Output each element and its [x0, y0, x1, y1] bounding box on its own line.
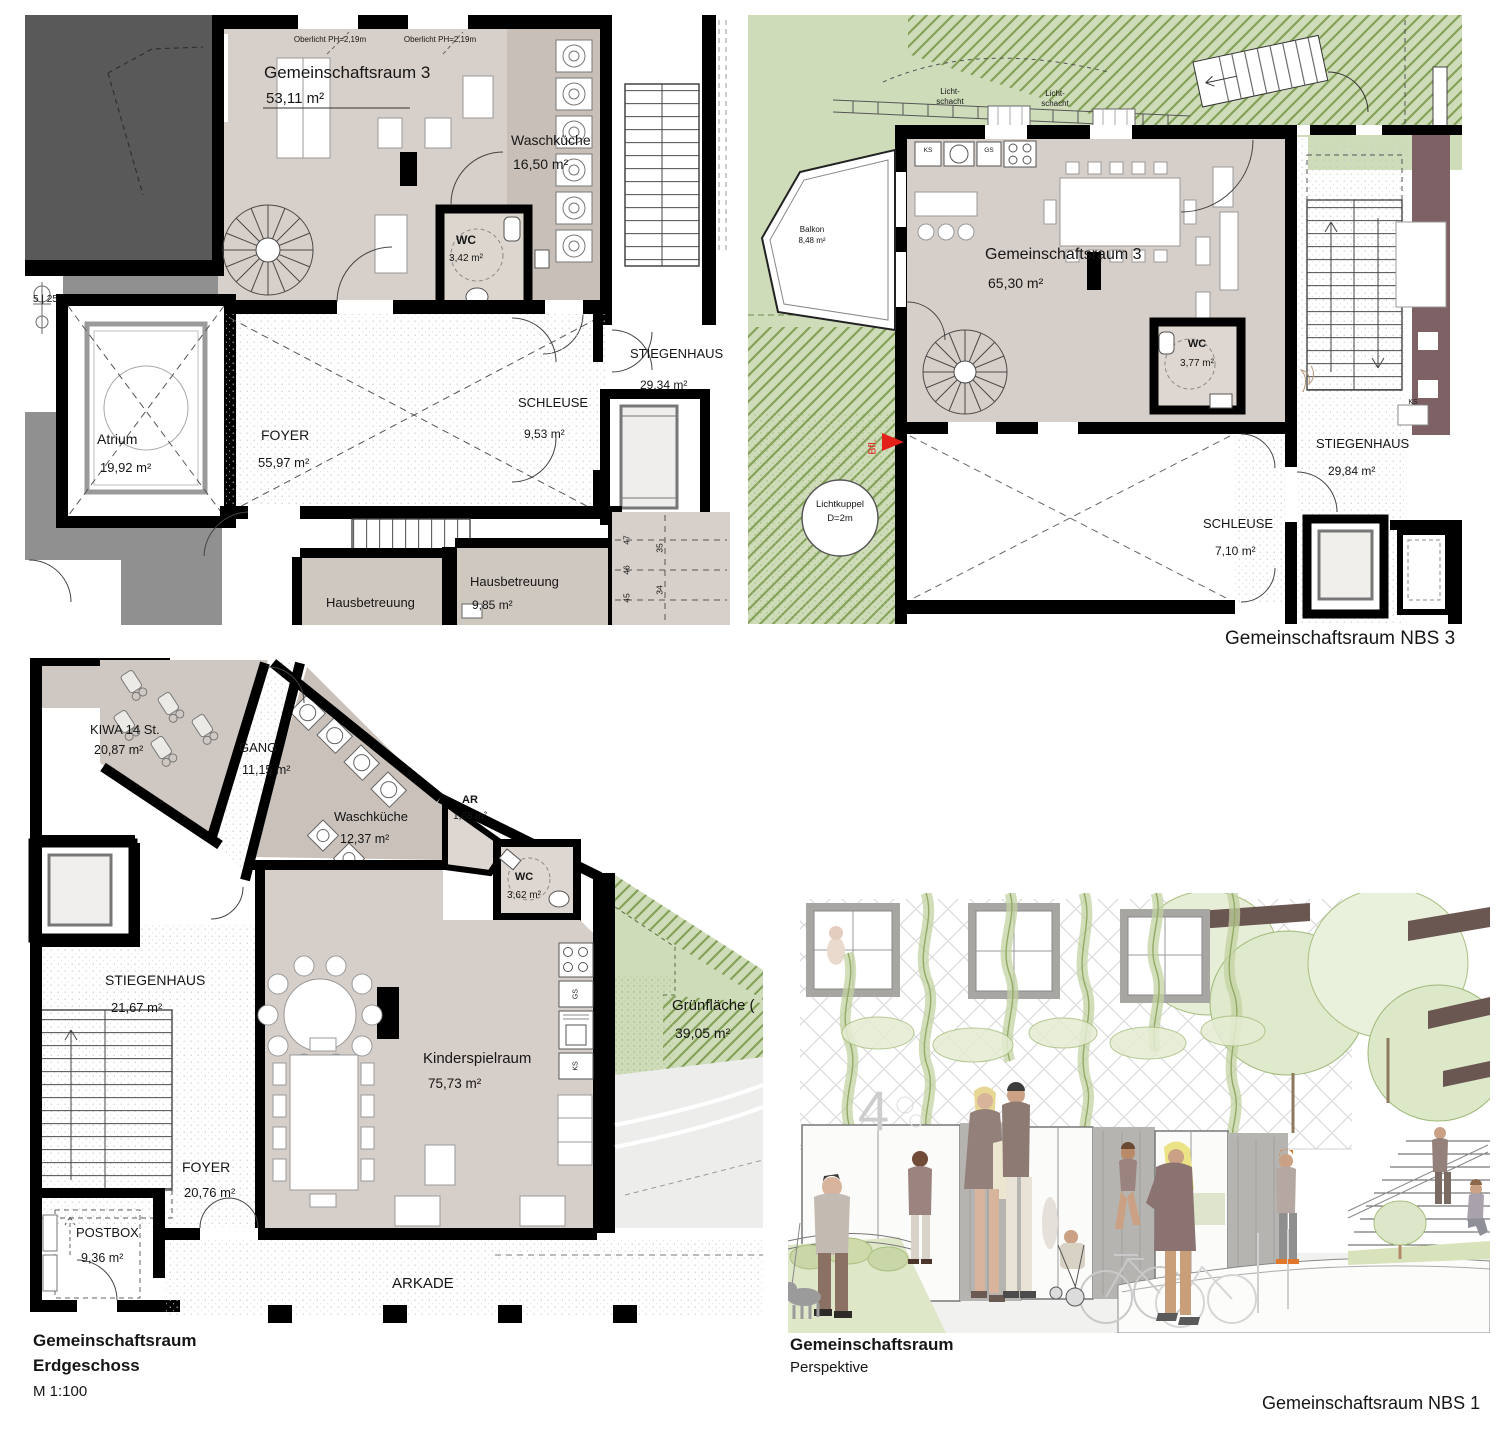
room-area-kinderspielraum: 75,73 m² [428, 1077, 481, 1091]
room-area-waschkueche3: 12,37 m² [340, 833, 389, 846]
room-area-ar: 1,68 m² [453, 812, 487, 823]
wall [245, 860, 460, 870]
caption-plan3-line1: Gemeinschaftsraum [33, 1332, 196, 1350]
room-area-postbox: 9,36 m² [81, 1252, 123, 1265]
room-area-foyer3: 20,76 m² [184, 1186, 235, 1200]
lichtkuppel-label-1: Lichtkuppel [816, 500, 864, 510]
room-area-gruenflaeche: 39,05 m² [675, 1026, 730, 1041]
room-label-schleuse1: SCHLEUSE [518, 396, 588, 410]
room-label-wc3: WC [515, 872, 533, 884]
room-label-ar: AR [462, 795, 478, 807]
room-label-gang: GANG [239, 741, 277, 755]
room-label-hausbetreuung-right: Hausbetreuung [470, 575, 559, 589]
spiral-stair [923, 330, 1007, 414]
parking-number-47: 47 [623, 535, 632, 544]
caption-plan2: Gemeinschaftsraum NBS 3 [1225, 629, 1455, 649]
room-label-gemeinschaftsraum1: Gemeinschaftsraum 3 [264, 64, 430, 82]
room-area-hausbetreuung-right: 9,85 m² [472, 599, 513, 612]
walkway [615, 1057, 763, 1228]
room-label-arkade: ARKADE [392, 1276, 454, 1292]
room-area-wc1: 3,42 m² [449, 254, 483, 265]
island-counter [915, 192, 977, 240]
room-label-waschkueche1: Waschküche [511, 133, 591, 148]
room-bottom-wall [895, 422, 1297, 434]
room-label-postbox: POSTBOX [76, 1226, 139, 1240]
kitchen-strip [559, 943, 593, 1079]
arkade [165, 1240, 763, 1323]
wall-left [255, 870, 265, 1228]
bfl-label: Bfl. [867, 439, 878, 454]
room-area-balkon: 8,48 m² [798, 237, 825, 245]
perspective-rendering [788, 893, 1490, 1333]
room-label-foyer3: FOYER [182, 1160, 230, 1175]
foyer-floor [226, 314, 652, 518]
gruenflaeche [615, 875, 763, 1075]
room-area-stiegenhaus1: 29,34 m² [640, 379, 687, 392]
tree-tag-label: 5 | 25 [33, 295, 58, 306]
stiegenhaus-area [37, 925, 255, 1228]
floor-plan-nbs3-main [748, 12, 1462, 624]
parking-number-34: 34 [656, 585, 665, 594]
room-label-stiegenhaus2: STIEGENHAUS [1316, 437, 1409, 451]
room-area-wc2: 3,77 m² [1180, 359, 1214, 370]
room-area-atrium: 19,92 m² [100, 461, 151, 475]
room-label-atrium: Atrium [97, 432, 137, 447]
room-area-gang: 11,15 m² [242, 764, 290, 777]
room-area-stiegenhaus2: 29,84 m² [1328, 465, 1375, 478]
room-label-wc1: WC [456, 234, 476, 247]
room-area-gemeinschaftsraum2: 65,30 m² [988, 276, 1043, 291]
wc-room [497, 843, 577, 917]
lichtschacht-label-2a: Licht- [1045, 90, 1065, 98]
elevator [33, 843, 133, 938]
room-label-wc2: WC [1188, 339, 1206, 351]
footer-sheet-title: Gemeinschaftsraum NBS 1 [1262, 1394, 1480, 1413]
caption-plan3-line3: M 1:100 [33, 1384, 87, 1400]
room-label-gemeinschaftsraum2: Gemeinschaftsraum 3 [985, 247, 1142, 264]
room-area-gemeinschaftsraum1: 53,11 m² [266, 91, 324, 107]
room-area-kiwa: 20,87 m² [94, 744, 143, 757]
elevator [605, 394, 705, 520]
wall-right [593, 873, 615, 1233]
lichtschacht-label-2b: schacht [1041, 100, 1069, 108]
oberlicht-label-right: Oberlicht PH=2,19m [404, 36, 476, 44]
room-label-stiegenhaus3: STIEGENHAUS [105, 973, 205, 988]
wall-fragment [1433, 67, 1447, 127]
room-area-schleuse2: 7,10 m² [1215, 545, 1256, 558]
parking-number-35: 35 [656, 543, 665, 552]
gs-appliance-label: GS [984, 148, 993, 155]
parking-number-45: 45 [623, 593, 632, 602]
ks-appliance-label-3: KS [572, 1061, 579, 1070]
oberlicht-label-left: Oberlicht PH=2,19m [294, 36, 366, 44]
elevator [1307, 519, 1384, 614]
room-label-waschkueche3: Waschküche [334, 810, 408, 824]
room-area-stiegenhaus3: 21,67 m² [111, 1001, 162, 1015]
parking-number-46: 46 [623, 565, 632, 574]
caption-perspective-line2: Perspektive [790, 1360, 868, 1376]
room-area-waschkueche1: 16,50 m² [513, 157, 568, 172]
door-number: 4 [858, 1082, 889, 1141]
drawing-sheet: Oberlicht PH=2,19m Oberlicht PH=2,19m Ge… [0, 0, 1500, 1431]
floor-plan-nbs3-upper [15, 12, 730, 625]
room-label-kiwa: KIWA 14 St. [90, 723, 160, 737]
room-label-stiegenhaus1: STIEGENHAUS [630, 347, 723, 361]
room-area-schleuse1: 9,53 m² [524, 428, 565, 441]
lichtschacht-label-1a: Licht- [940, 88, 960, 96]
caption-plan3-line2: Erdgeschoss [33, 1357, 140, 1375]
stair-shaft-right [612, 15, 726, 325]
lichtschacht-label-1b: schacht [936, 98, 964, 106]
room-label-balkon: Balkon [800, 226, 824, 234]
room-area-foyer1: 55,97 m² [258, 456, 309, 470]
ks-right-label: KS [1408, 399, 1417, 406]
lichtkuppel-label-2: D=2m [827, 514, 853, 524]
caption-perspective-line1: Gemeinschaftsraum [790, 1336, 953, 1354]
room-label-foyer1: FOYER [261, 428, 309, 443]
ks-appliance-label: KS [924, 148, 933, 155]
room-label-kinderspielraum: Kinderspielraum [423, 1051, 531, 1067]
void-area [895, 434, 1235, 624]
atrium [62, 300, 230, 522]
room-label-hausbetreuung-left: Hausbetreuung [326, 596, 415, 610]
room-label-gruenflaeche: Grünfläche ( [672, 998, 755, 1014]
room-label-schleuse2: SCHLEUSE [1203, 517, 1273, 531]
column [400, 152, 417, 186]
gs-appliance-label-3: GS [572, 989, 579, 999]
room-area-wc3: 3,62 m² [507, 891, 541, 902]
spiral-stair [223, 205, 313, 295]
window-3 [1120, 909, 1210, 1003]
